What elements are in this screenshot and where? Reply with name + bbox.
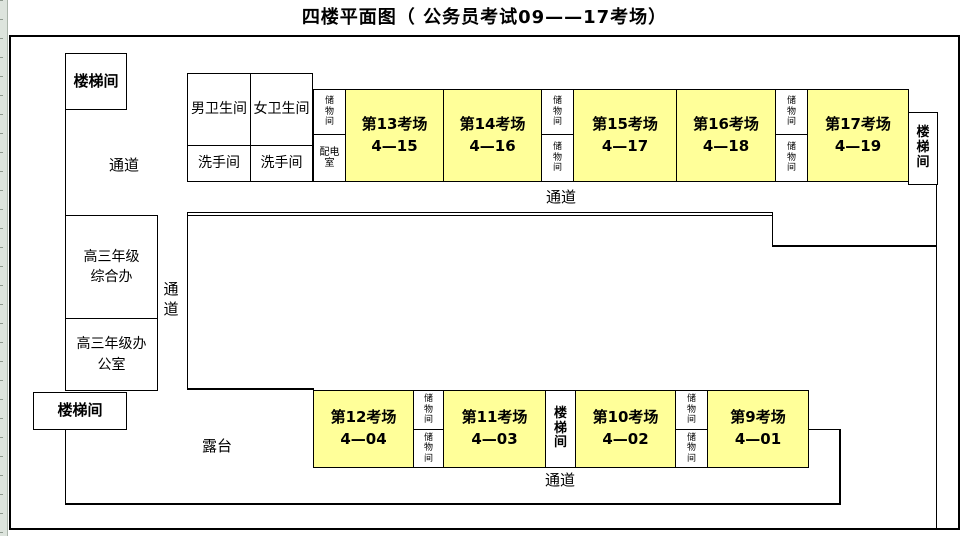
exam-room-12-label: 第12考场 4—04 bbox=[331, 407, 397, 451]
exam-room-17: 第17考场 4—19 bbox=[807, 89, 909, 182]
exam-room-14-label: 第14考场 4—16 bbox=[460, 114, 526, 158]
storage-top-2: 储 物 间 bbox=[541, 89, 574, 135]
spreadsheet-row-header-strip bbox=[0, 0, 8, 536]
stairwell-bottom-left: 楼梯间 bbox=[33, 392, 127, 430]
exam-room-10: 第10考场 4—02 bbox=[575, 390, 676, 468]
exam-room-11-label: 第11考场 4—03 bbox=[462, 407, 528, 451]
exam-room-12: 第12考场 4—04 bbox=[313, 390, 414, 468]
mens-restroom-label: 男卫生间 bbox=[191, 99, 247, 119]
stairwell-top-left: 楼梯间 bbox=[65, 53, 127, 110]
grade3-office-label: 高三年级办 公室 bbox=[77, 334, 147, 375]
exam-room-13-label: 第13考场 4—15 bbox=[362, 114, 428, 158]
exam-room-9: 第9考场 4—01 bbox=[707, 390, 809, 468]
exam-room-15-label: 第15考场 4—17 bbox=[592, 114, 658, 158]
corridor-label-bottom: 通道 bbox=[535, 471, 585, 491]
storage-top-4: 储 物 间 bbox=[775, 89, 808, 135]
corridor-label-vertical-text: 通 道 bbox=[163, 280, 178, 318]
corridor-label-top-text: 通道 bbox=[546, 188, 576, 206]
storage-top-4-label: 储 物 间 bbox=[787, 96, 796, 127]
storage-bottom-2-label: 储 物 间 bbox=[424, 433, 433, 464]
corridor-label-top: 通道 bbox=[536, 188, 586, 208]
womens-restroom: 女卫生间 bbox=[250, 73, 313, 146]
grade3-general-office: 高三年级 综合办 bbox=[65, 215, 158, 319]
row-tick-marks bbox=[0, 0, 3, 536]
bottom-corridor-floor bbox=[65, 503, 841, 505]
storage-top-3-label: 储 物 间 bbox=[553, 142, 562, 173]
central-block-top bbox=[187, 212, 773, 216]
exam-room-9-label: 第9考场 4—01 bbox=[730, 407, 785, 451]
storage-top-1-label: 储 物 间 bbox=[325, 96, 334, 127]
corridor-label-upper-left: 通道 bbox=[100, 156, 148, 176]
bottom-corridor-top-right bbox=[808, 429, 840, 430]
exam-room-16: 第16考场 4—18 bbox=[676, 89, 776, 182]
washroom-left: 洗手间 bbox=[187, 145, 251, 182]
central-block-bottom bbox=[187, 388, 314, 390]
exam-room-14: 第14考场 4—16 bbox=[443, 89, 542, 182]
power-distribution-room: 配电 室 bbox=[313, 134, 346, 182]
corridor-label-vertical: 通 道 bbox=[158, 280, 184, 319]
central-step-wall bbox=[772, 213, 773, 247]
exam-room-10-label: 第10考场 4—02 bbox=[593, 407, 659, 451]
storage-top-5: 储 物 间 bbox=[775, 134, 808, 182]
left-wall-upper bbox=[65, 110, 66, 216]
right-section-top bbox=[772, 245, 937, 247]
page-title: 四楼平面图（ 公务员考试09——17考场） bbox=[9, 4, 960, 32]
washroom-left-label: 洗手间 bbox=[198, 153, 240, 173]
storage-bottom-4-label: 储 物 间 bbox=[687, 433, 696, 464]
stairwell-bottom-middle: 楼 梯 间 bbox=[545, 390, 576, 468]
storage-top-3: 储 物 间 bbox=[541, 134, 574, 182]
storage-bottom-4: 储 物 间 bbox=[675, 429, 708, 468]
grade3-general-office-label: 高三年级 综合办 bbox=[84, 247, 140, 288]
storage-bottom-1: 储 物 间 bbox=[413, 390, 444, 430]
floorplan-screenshot: 四楼平面图（ 公务员考试09——17考场） 楼梯间男卫生间女卫生间洗手间洗手间储… bbox=[0, 0, 971, 536]
exam-room-13: 第13考场 4—15 bbox=[345, 89, 444, 182]
storage-bottom-3-label: 储 物 间 bbox=[687, 394, 696, 425]
storage-bottom-1-label: 储 物 间 bbox=[424, 394, 433, 425]
storage-bottom-2: 储 物 间 bbox=[413, 429, 444, 468]
corridor-label-upper-left-text: 通道 bbox=[109, 156, 139, 174]
storage-top-2-label: 储 物 间 bbox=[553, 96, 562, 127]
stairwell-bottom-middle-label: 楼 梯 间 bbox=[554, 407, 567, 452]
power-distribution-room-label: 配电 室 bbox=[320, 147, 340, 170]
washroom-right: 洗手间 bbox=[250, 145, 313, 182]
stairwell-top-left-label: 楼梯间 bbox=[73, 71, 118, 93]
grade3-office: 高三年级办 公室 bbox=[65, 318, 158, 391]
storage-bottom-3: 储 物 间 bbox=[675, 390, 708, 430]
stairwell-top-right: 楼 梯 间 bbox=[908, 112, 938, 185]
central-block-left bbox=[187, 213, 188, 390]
right-outer-wall bbox=[936, 185, 937, 529]
washroom-right-label: 洗手间 bbox=[261, 153, 303, 173]
left-wall-lower bbox=[65, 429, 66, 505]
storage-top-5-label: 储 物 间 bbox=[787, 142, 796, 173]
terrace-label-text: 露台 bbox=[202, 437, 232, 455]
stairwell-top-right-label: 楼 梯 间 bbox=[916, 126, 929, 171]
corridor-label-bottom-text: 通道 bbox=[545, 471, 575, 489]
exam-room-16-label: 第16考场 4—18 bbox=[693, 114, 759, 158]
storage-top-1: 储 物 间 bbox=[313, 89, 346, 135]
exam-room-11: 第11考场 4—03 bbox=[443, 390, 546, 468]
terrace-label: 露台 bbox=[193, 437, 241, 457]
stairwell-bottom-left-label: 楼梯间 bbox=[57, 400, 102, 422]
exam-room-15: 第15考场 4—17 bbox=[573, 89, 677, 182]
exam-room-17-label: 第17考场 4—19 bbox=[825, 114, 891, 158]
womens-restroom-label: 女卫生间 bbox=[254, 99, 310, 119]
mens-restroom: 男卫生间 bbox=[187, 73, 251, 146]
bottom-corridor-right-wall bbox=[839, 429, 841, 505]
